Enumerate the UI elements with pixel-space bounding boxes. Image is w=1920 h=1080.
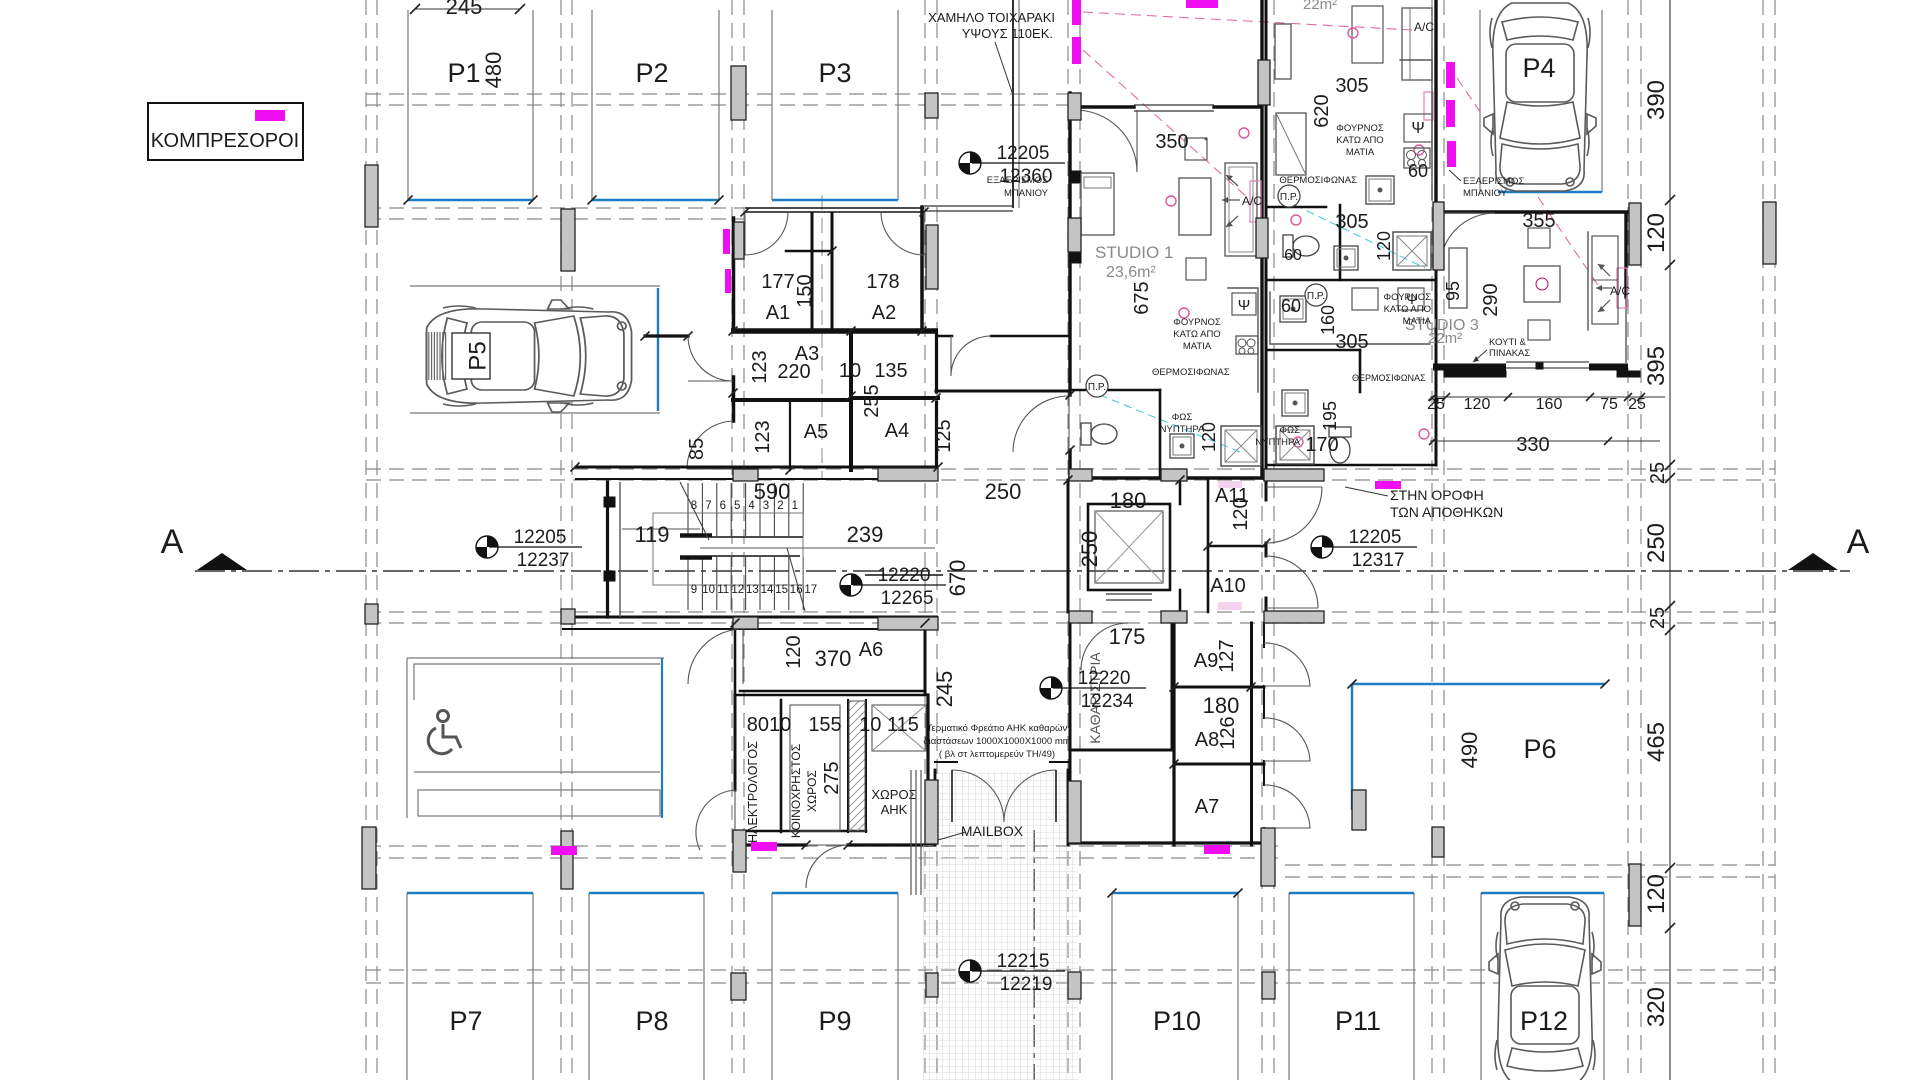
svg-text:A/C: A/C <box>1242 194 1262 208</box>
svg-text:P9: P9 <box>818 1006 851 1036</box>
svg-text:395: 395 <box>1643 346 1670 386</box>
svg-text:P12: P12 <box>1520 1006 1568 1036</box>
svg-text:ΕΞΑΕΡΙΣΜΟΣ: ΕΞΑΕΡΙΣΜΟΣ <box>1463 176 1524 187</box>
svg-text:ΤΩΝ ΑΠΟΘΗΚΩΝ: ΤΩΝ ΑΠΟΘΗΚΩΝ <box>1390 504 1503 520</box>
svg-text:22m²: 22m² <box>1428 330 1462 347</box>
svg-text:85: 85 <box>686 438 708 460</box>
svg-text:355: 355 <box>1522 210 1555 232</box>
svg-text:ΧΩΡΟΣ: ΧΩΡΟΣ <box>805 770 819 812</box>
svg-text:120: 120 <box>1643 874 1670 914</box>
svg-text:12360: 12360 <box>1000 166 1053 187</box>
svg-text:180: 180 <box>1110 488 1147 513</box>
svg-text:ΗΛΕΚΤΡΟΛΟΓΟΣ: ΗΛΕΚΤΡΟΛΟΓΟΣ <box>746 741 760 843</box>
svg-text:590: 590 <box>754 479 791 504</box>
svg-text:320: 320 <box>1643 987 1670 1027</box>
svg-text:250: 250 <box>1077 531 1102 568</box>
svg-text:125: 125 <box>933 419 955 452</box>
svg-text:95: 95 <box>1443 281 1463 301</box>
svg-text:126: 126 <box>1217 716 1239 749</box>
svg-text:175: 175 <box>1109 624 1146 649</box>
svg-text:1: 1 <box>792 500 798 512</box>
svg-text:150: 150 <box>794 274 816 307</box>
svg-text:16: 16 <box>790 584 803 596</box>
svg-text:12317: 12317 <box>1352 550 1405 571</box>
svg-text:A/C: A/C <box>1610 284 1630 298</box>
svg-text:15: 15 <box>775 584 788 596</box>
svg-text:675: 675 <box>1131 281 1153 314</box>
svg-text:180: 180 <box>1203 693 1240 718</box>
svg-text:ΜΑΤΙΑ: ΜΑΤΙΑ <box>1403 316 1432 327</box>
svg-text:155: 155 <box>808 714 841 736</box>
svg-text:ΚΟΜΠΡΕΣΟΡΟΙ: ΚΟΜΠΡΕΣΟΡΟΙ <box>151 130 299 152</box>
svg-text:ΦΩΣ: ΦΩΣ <box>1279 425 1300 436</box>
svg-text:12220: 12220 <box>1078 668 1131 689</box>
svg-text:ΦΟΥΡΝΟΣ: ΦΟΥΡΝΟΣ <box>1173 317 1221 328</box>
svg-text:75: 75 <box>1600 396 1618 413</box>
svg-text:11: 11 <box>717 584 729 596</box>
svg-text:P6: P6 <box>1523 734 1556 764</box>
svg-text:P7: P7 <box>449 1006 482 1036</box>
svg-text:119: 119 <box>634 522 669 547</box>
svg-text:275: 275 <box>821 761 843 794</box>
svg-text:14: 14 <box>761 584 774 596</box>
svg-text:ΦΩΣ: ΦΩΣ <box>1172 412 1193 423</box>
svg-text:A2: A2 <box>872 302 896 324</box>
svg-text:A: A <box>1847 523 1870 561</box>
svg-text:ΜΑΤΙΑ: ΜΑΤΙΑ <box>1183 341 1212 352</box>
svg-text:8: 8 <box>691 500 697 512</box>
svg-text:305: 305 <box>1335 211 1368 233</box>
svg-text:60: 60 <box>1281 296 1301 316</box>
svg-text:MAILBOX: MAILBOX <box>961 823 1024 839</box>
svg-text:P4: P4 <box>1522 53 1555 83</box>
svg-text:305: 305 <box>1335 331 1368 353</box>
svg-text:P11: P11 <box>1335 1006 1381 1036</box>
svg-text:P1: P1 <box>447 58 480 88</box>
svg-text:A5: A5 <box>804 421 828 443</box>
svg-text:ΚΟΙΝΟΧΡΗΣΤΟΣ: ΚΟΙΝΟΧΡΗΣΤΟΣ <box>789 744 803 838</box>
svg-text:350: 350 <box>1155 131 1188 153</box>
svg-text:13: 13 <box>746 584 759 596</box>
svg-text:6: 6 <box>720 500 726 512</box>
svg-text:Τερματικό Φρεάτιο ΑΗΚ καθαρών: Τερματικό Φρεάτιο ΑΗΚ καθαρών <box>927 723 1068 734</box>
svg-text:ΠΙΝΑΚΑΣ: ΠΙΝΑΚΑΣ <box>1489 348 1530 359</box>
svg-text:12234: 12234 <box>1081 691 1134 712</box>
svg-text:195: 195 <box>1320 401 1340 431</box>
svg-text:120: 120 <box>1374 231 1394 261</box>
svg-text:ΧΩΡΟΣ: ΧΩΡΟΣ <box>871 787 916 802</box>
svg-text:10: 10 <box>839 360 861 382</box>
svg-text:12205: 12205 <box>997 143 1050 164</box>
svg-text:Ψ: Ψ <box>1238 297 1251 314</box>
svg-text:A1: A1 <box>766 302 790 324</box>
svg-text:17: 17 <box>804 584 817 596</box>
svg-text:12237: 12237 <box>517 550 570 571</box>
svg-text:P3: P3 <box>818 58 851 88</box>
svg-text:ΑΗΚ: ΑΗΚ <box>881 802 908 817</box>
svg-text:ΝΥΠΤΗΡΑ: ΝΥΠΤΗΡΑ <box>1255 437 1300 448</box>
svg-text:25: 25 <box>1647 462 1669 484</box>
svg-text:25: 25 <box>1628 396 1646 413</box>
svg-text:22m²: 22m² <box>1303 0 1337 13</box>
svg-text:P8: P8 <box>635 1006 668 1036</box>
svg-text:25: 25 <box>1427 396 1445 413</box>
svg-text:10: 10 <box>702 584 715 596</box>
svg-text:160: 160 <box>1536 396 1563 413</box>
svg-text:A6: A6 <box>859 639 883 661</box>
svg-text:ΚΑΤΩ ΑΠΟ: ΚΑΤΩ ΑΠΟ <box>1336 135 1383 146</box>
svg-text:7: 7 <box>705 500 711 512</box>
svg-text:12219: 12219 <box>1000 974 1053 995</box>
svg-text:A4: A4 <box>885 420 909 442</box>
svg-text:ΚΑΤΩ ΑΠΟ: ΚΑΤΩ ΑΠΟ <box>1173 329 1220 340</box>
svg-text:ΣΤΗΝ ΟΡΟΦΗ: ΣΤΗΝ ΟΡΟΦΗ <box>1390 487 1484 503</box>
svg-text:305: 305 <box>1335 75 1368 97</box>
svg-text:120: 120 <box>1464 396 1491 413</box>
svg-text:123: 123 <box>749 350 771 383</box>
svg-text:60: 60 <box>1408 161 1428 181</box>
svg-text:60: 60 <box>1284 247 1302 264</box>
svg-text:290: 290 <box>1480 283 1502 316</box>
svg-text:120: 120 <box>1643 213 1670 253</box>
svg-text:P10: P10 <box>1153 1006 1201 1036</box>
svg-text:A7: A7 <box>1195 796 1219 818</box>
svg-text:250: 250 <box>985 479 1022 504</box>
svg-text:239: 239 <box>847 522 884 547</box>
svg-text:8010: 8010 <box>747 714 792 736</box>
svg-text:127: 127 <box>1216 639 1238 672</box>
svg-text:Π.Ρ.: Π.Ρ. <box>1307 291 1325 302</box>
svg-text:390: 390 <box>1643 80 1670 120</box>
svg-text:Ψ: Ψ <box>1411 120 1424 137</box>
svg-text:Π.Ρ.: Π.Ρ. <box>1088 382 1106 393</box>
svg-text:220: 220 <box>777 361 810 383</box>
svg-text:465: 465 <box>1643 722 1670 762</box>
svg-text:A/C: A/C <box>1414 20 1434 34</box>
svg-text:ΜΠΑΝΙΟΥ: ΜΠΑΝΙΟΥ <box>1004 188 1049 199</box>
svg-text:23,6m²: 23,6m² <box>1106 264 1156 281</box>
svg-text:480: 480 <box>481 52 506 89</box>
svg-text:250: 250 <box>1643 523 1670 563</box>
svg-text:10 115: 10 115 <box>859 714 919 736</box>
svg-text:A9: A9 <box>1194 650 1218 672</box>
svg-text:9: 9 <box>691 584 697 596</box>
svg-text:ΧΑΜΗΛΟ ΤΟΙΧΑΡΑΚΙ: ΧΑΜΗΛΟ ΤΟΙΧΑΡΑΚΙ <box>928 10 1055 25</box>
svg-text:123: 123 <box>752 420 774 453</box>
svg-text:178: 178 <box>866 271 899 293</box>
svg-text:ΦΟΥΡΝΟΣ: ΦΟΥΡΝΟΣ <box>1384 292 1432 303</box>
svg-text:A10: A10 <box>1210 575 1246 597</box>
svg-text:255: 255 <box>861 384 883 417</box>
svg-text:Π.Ρ.: Π.Ρ. <box>1280 192 1298 203</box>
svg-text:170: 170 <box>1305 434 1338 456</box>
svg-text:P5: P5 <box>464 341 491 370</box>
svg-text:135: 135 <box>874 360 907 382</box>
svg-text:12265: 12265 <box>881 588 934 609</box>
svg-text:ΜΑΤΙΑ: ΜΑΤΙΑ <box>1346 147 1375 158</box>
svg-text:120: 120 <box>1230 497 1252 530</box>
svg-text:STUDIO 1: STUDIO 1 <box>1095 243 1173 262</box>
svg-text:διαστάσεων 1000Χ1000Χ1000 mm: διαστάσεων 1000Χ1000Χ1000 mm <box>923 736 1070 747</box>
svg-text:5: 5 <box>734 500 740 512</box>
svg-text:ΦΟΥΡΝΟΣ: ΦΟΥΡΝΟΣ <box>1336 123 1384 134</box>
svg-text:120: 120 <box>783 635 805 668</box>
svg-text:ΚΑΤΩ ΑΠΟ: ΚΑΤΩ ΑΠΟ <box>1384 304 1431 315</box>
svg-text:( βλ στ λεπτομερεύν ΤΗ/49): ( βλ στ λεπτομερεύν ΤΗ/49) <box>939 749 1055 760</box>
svg-text:12205: 12205 <box>1349 527 1402 548</box>
svg-text:ΘΕΡΜΟΣΙΦΩΝΑΣ: ΘΕΡΜΟΣΙΦΩΝΑΣ <box>1152 367 1230 378</box>
svg-text:160: 160 <box>1318 305 1338 335</box>
svg-text:12205: 12205 <box>514 527 567 548</box>
svg-text:245: 245 <box>932 671 957 708</box>
svg-text:490: 490 <box>1457 732 1482 769</box>
svg-text:ΚΟΥΤΙ &: ΚΟΥΤΙ & <box>1489 337 1527 348</box>
svg-text:12215: 12215 <box>997 951 1050 972</box>
svg-text:25: 25 <box>1647 607 1669 629</box>
svg-text:A8: A8 <box>1195 729 1219 751</box>
svg-text:370: 370 <box>815 646 852 671</box>
svg-text:177: 177 <box>761 271 794 293</box>
svg-text:670: 670 <box>945 560 970 597</box>
svg-text:A: A <box>161 523 184 561</box>
svg-text:620: 620 <box>1311 94 1333 127</box>
svg-text:ΜΠΑΝΙΟΥ: ΜΠΑΝΙΟΥ <box>1463 188 1508 199</box>
svg-text:ΘΕΡΜΟΣΙΦΩΝΑΣ: ΘΕΡΜΟΣΙΦΩΝΑΣ <box>1279 175 1357 186</box>
svg-text:ΘΕΡΜΟΣΙΦΩΝΑΣ: ΘΕΡΜΟΣΙΦΩΝΑΣ <box>1352 373 1426 383</box>
svg-text:12: 12 <box>731 584 744 596</box>
svg-text:330: 330 <box>1516 434 1549 456</box>
svg-text:ΥΨΟΥΣ 110ΕΚ.: ΥΨΟΥΣ 110ΕΚ. <box>962 26 1053 41</box>
svg-text:ΝΥΠΤΗΡΑ: ΝΥΠΤΗΡΑ <box>1160 424 1205 435</box>
svg-text:P2: P2 <box>635 58 668 88</box>
